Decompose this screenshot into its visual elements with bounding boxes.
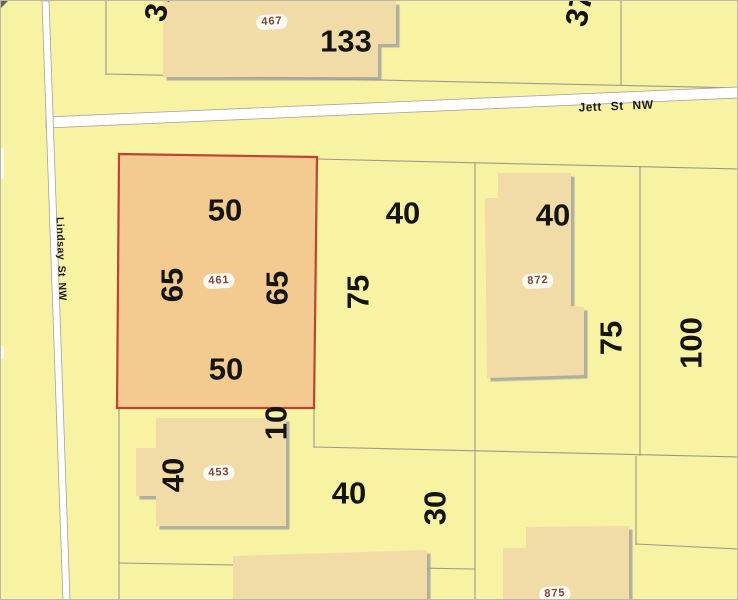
building-south-center — [233, 550, 427, 600]
parcel-id-875[interactable]: 875 — [539, 586, 571, 600]
edge-sliver — [1, 148, 4, 179]
parcel-id-467[interactable]: 467 — [256, 14, 288, 31]
street-label-jett: Jett St NW — [578, 98, 654, 115]
parcel-map-canvas[interactable]: Jett St NW Lindsay St NW 37 37 133 50 65… — [0, 0, 738, 600]
parcel-id-453[interactable]: 453 — [203, 465, 235, 482]
map-shape-layer — [1, 1, 738, 600]
parcel-id-872[interactable]: 872 — [522, 273, 554, 290]
edge-sliver — [1, 346, 4, 359]
corner-artifact — [1, 1, 8, 8]
parcel-id-461[interactable]: 461 — [203, 273, 235, 290]
building-467 — [163, 1, 396, 77]
